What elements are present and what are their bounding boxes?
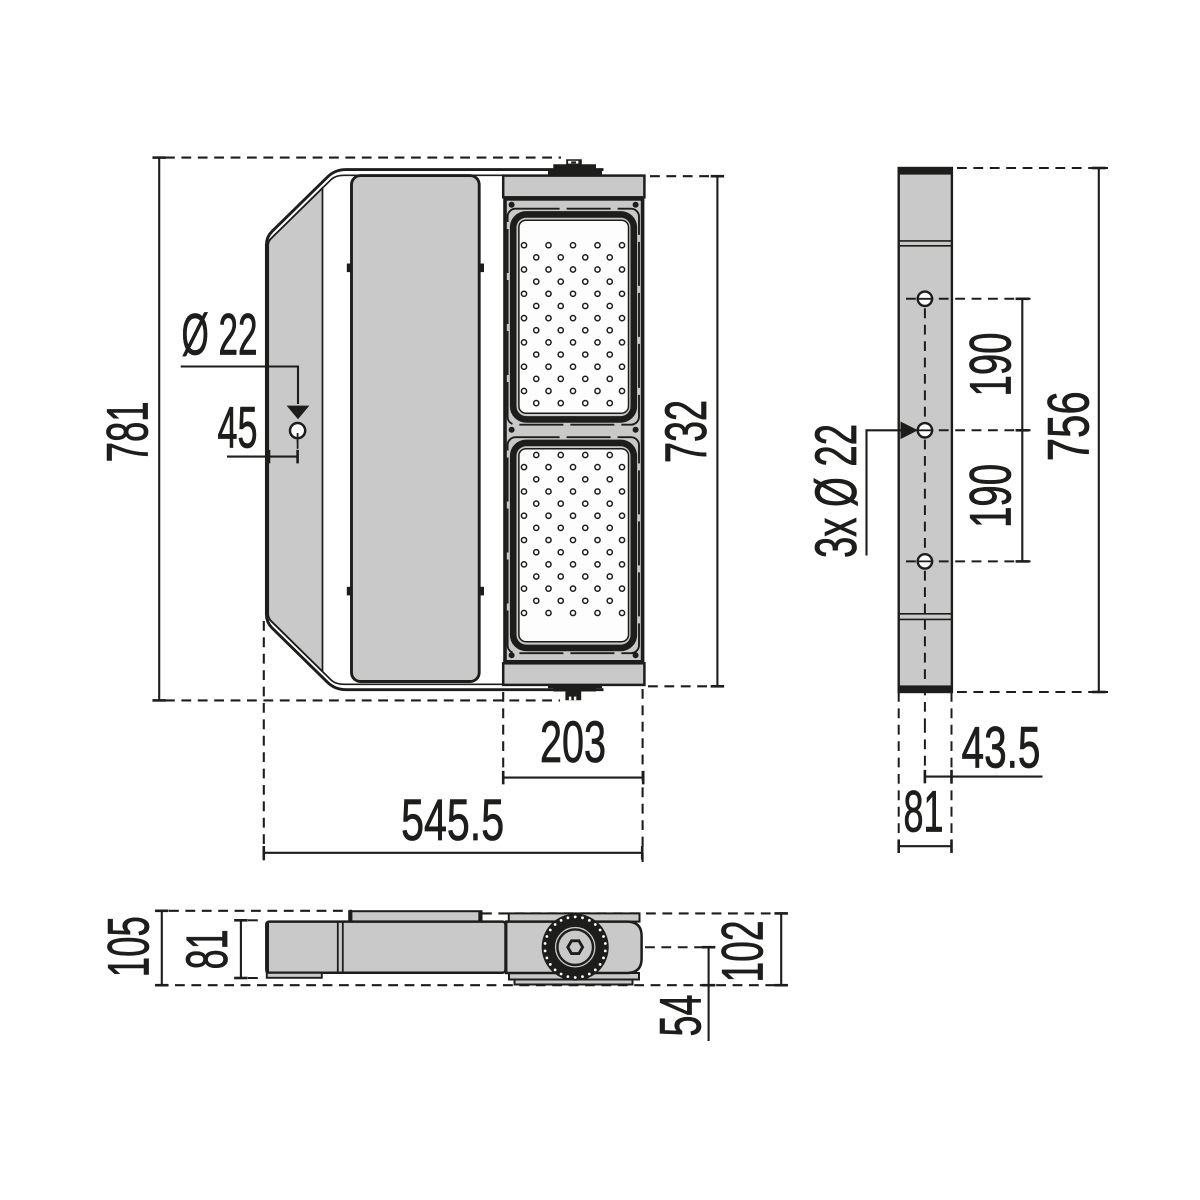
svg-text:781: 781 [96,401,161,462]
svg-text:732: 732 [654,400,719,463]
svg-text:81: 81 [175,929,240,969]
svg-text:3x Ø 22: 3x Ø 22 [804,424,869,558]
svg-text:105: 105 [97,916,162,977]
svg-text:43.5: 43.5 [962,715,1041,780]
svg-text:756: 756 [1037,391,1102,461]
svg-text:545.5: 545.5 [401,788,504,853]
svg-text:45: 45 [218,396,258,461]
svg-text:102: 102 [711,921,776,983]
svg-text:203: 203 [540,710,606,775]
svg-text:190: 190 [959,464,1024,528]
svg-text:Ø 22: Ø 22 [182,303,258,368]
svg-text:190: 190 [959,333,1024,397]
svg-text:54: 54 [649,995,714,1037]
svg-text:81: 81 [904,780,944,845]
